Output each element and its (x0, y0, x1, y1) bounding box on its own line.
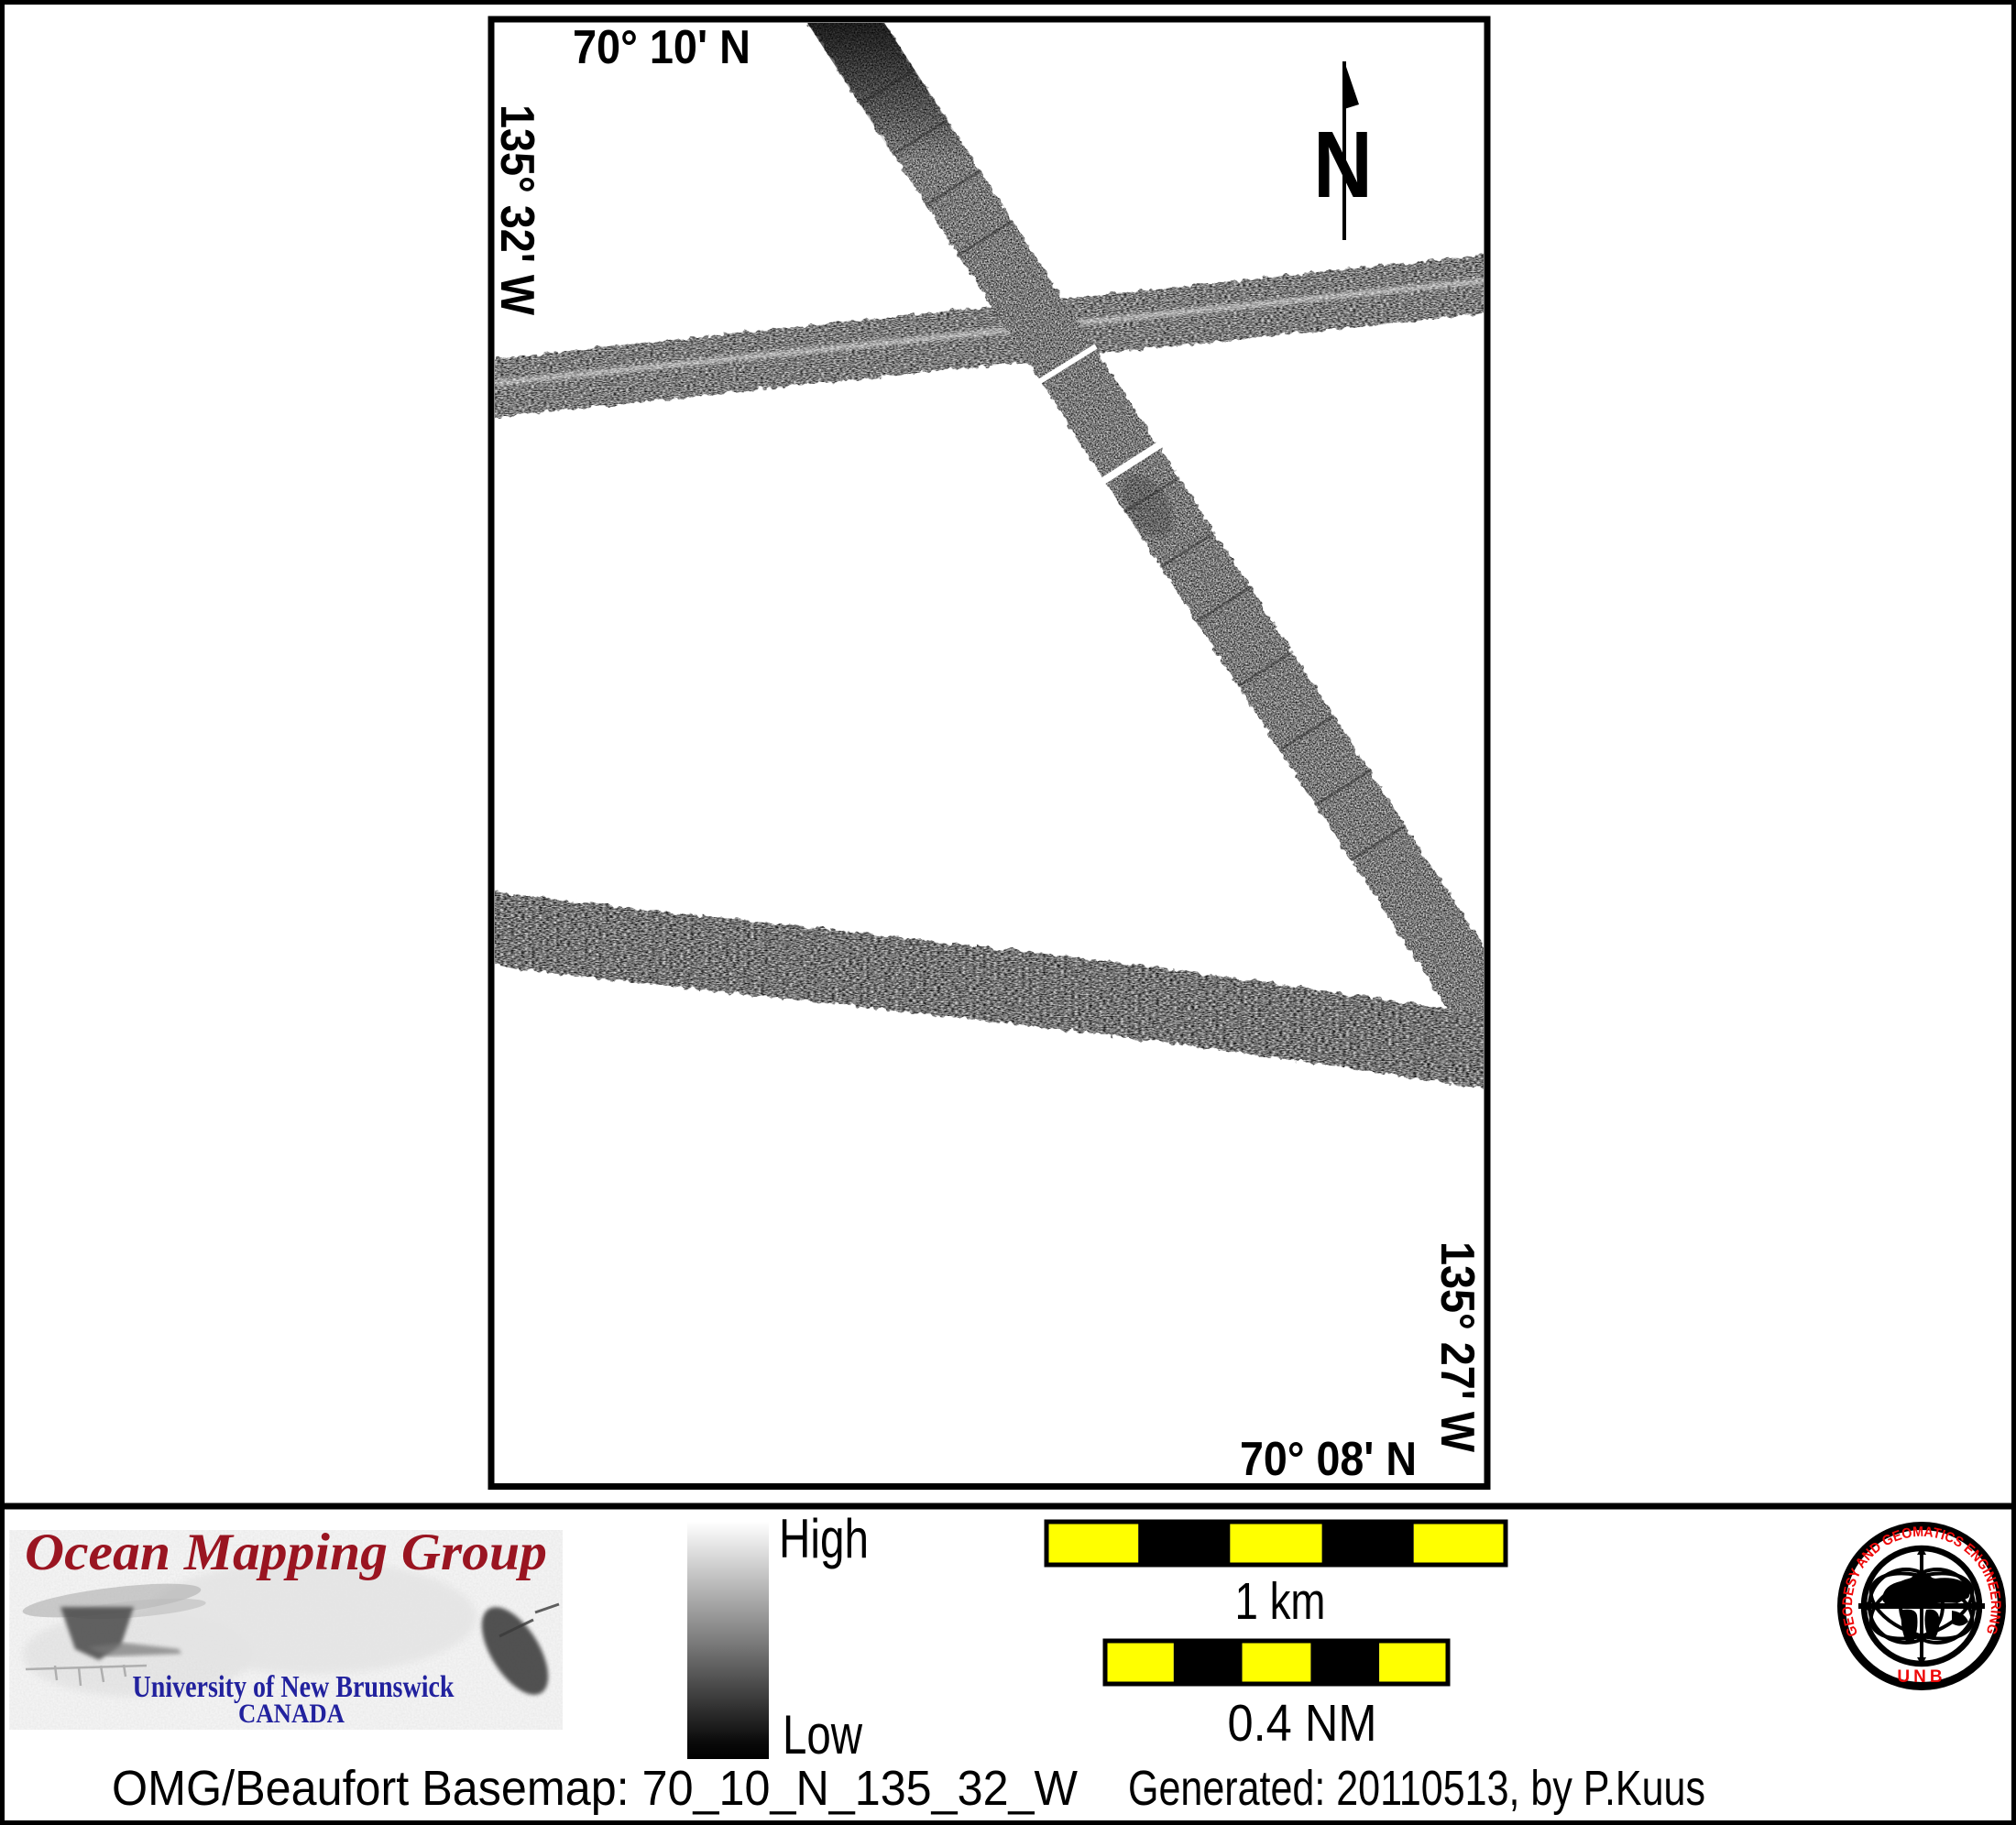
svg-text:Generated: 20110513, by P.Kuus: Generated: 20110513, by P.Kuus (1128, 1761, 1705, 1816)
svg-text:Ocean Mapping Group: Ocean Mapping Group (25, 1524, 547, 1581)
svg-text:70° 08' N: 70° 08' N (1240, 1433, 1417, 1486)
svg-text:70° 10' N: 70° 10' N (573, 21, 751, 74)
svg-text:OMG/Beaufort Basemap: 70_10_N_: OMG/Beaufort Basemap: 70_10_N_135_32_W (112, 1761, 1078, 1816)
svg-text:High: High (779, 1508, 869, 1569)
svg-text:135° 27' W: 135° 27' W (1430, 1241, 1484, 1453)
svg-text:1 km: 1 km (1235, 1572, 1326, 1631)
svg-text:UNB: UNB (1897, 1667, 1945, 1687)
svg-text:0.4 NM: 0.4 NM (1228, 1694, 1377, 1753)
svg-text:N: N (1313, 113, 1373, 217)
svg-text:CANADA: CANADA (238, 1699, 345, 1729)
svg-text:Low: Low (783, 1704, 863, 1765)
svg-text:135° 32' W: 135° 32' W (490, 104, 543, 316)
